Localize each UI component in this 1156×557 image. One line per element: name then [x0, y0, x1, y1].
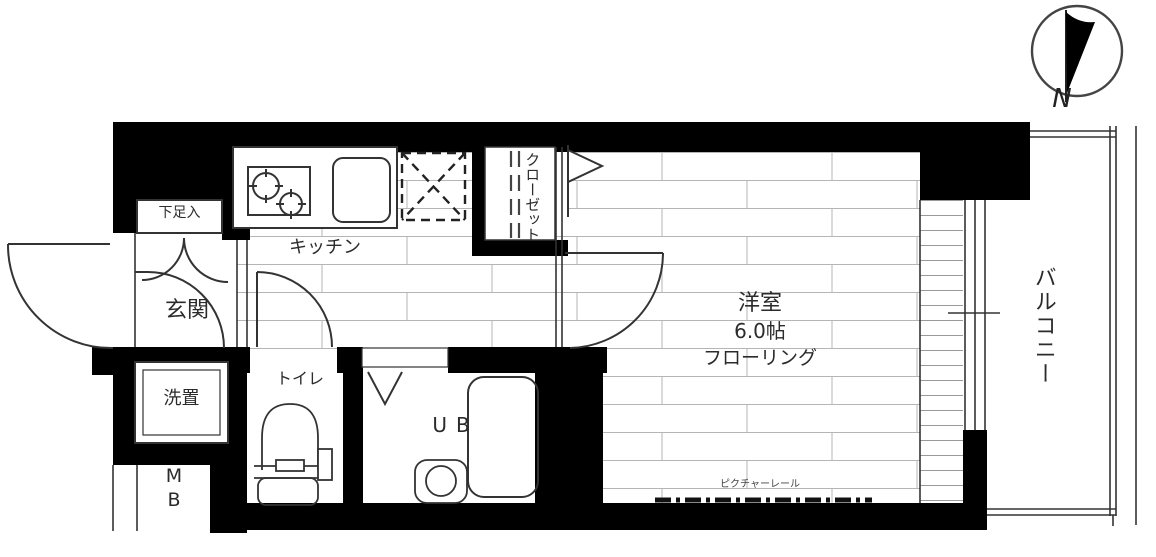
western-room-floor: フローリング: [660, 348, 860, 369]
western-room-name: 洋室: [660, 292, 860, 316]
compass-north-label: N: [1042, 85, 1082, 113]
wall-washer-top: [113, 347, 228, 362]
wall-window-south: [963, 430, 987, 503]
toilet-fixture: [254, 404, 332, 505]
front-door-arc: [8, 244, 113, 348]
wall-closet-left: [472, 147, 485, 254]
bathtub: [468, 377, 538, 497]
entrance-label: 玄関: [137, 299, 237, 323]
bath-fixtures: [415, 377, 538, 503]
wall-bath-right: [535, 373, 603, 503]
kitchen-label: キッチン: [270, 238, 380, 257]
meter-box-label-m: M: [142, 466, 206, 487]
shoe-cabinet-label: 下足入: [137, 206, 222, 221]
bath-folding-door: [368, 372, 402, 404]
wall-top-right-block: [920, 152, 1030, 200]
wall-washer-bottom: [113, 443, 228, 465]
wall-top-left-mass: [113, 122, 237, 200]
toilet-tank: [258, 478, 318, 505]
bath-sink-bowl: [426, 466, 456, 496]
balcony-label: バルコニー: [1031, 256, 1055, 396]
bath-threshold: [362, 348, 448, 367]
wall-band-3: [448, 347, 607, 373]
shoe-cabinet-door-arc-2: [184, 238, 228, 282]
meter-box-label-b: B: [142, 490, 206, 511]
toilet-label: トイレ: [250, 370, 350, 387]
wall-closet-bottom: [472, 240, 568, 256]
washer-label: 洗置: [135, 389, 228, 408]
wall-left-upper: [113, 200, 137, 233]
western-room-size: 6.0帖: [660, 321, 860, 343]
picture-rail-label: ピクチャーレール: [695, 480, 825, 491]
unit-bath-label: UB: [408, 415, 503, 437]
toilet-side-tab: [318, 449, 332, 480]
wall-bottom: [210, 503, 987, 530]
floor-plan: 下足入 玄関 キッチン クローゼット 洋室 6.0帖 フローリング トイレ 洗置…: [0, 0, 1156, 557]
kitchen-sink: [333, 158, 390, 222]
compass-needle: [1066, 12, 1095, 93]
toilet-button: [276, 460, 304, 471]
closet-label: クローゼット: [524, 151, 540, 243]
window-sill-strip: [920, 200, 963, 503]
